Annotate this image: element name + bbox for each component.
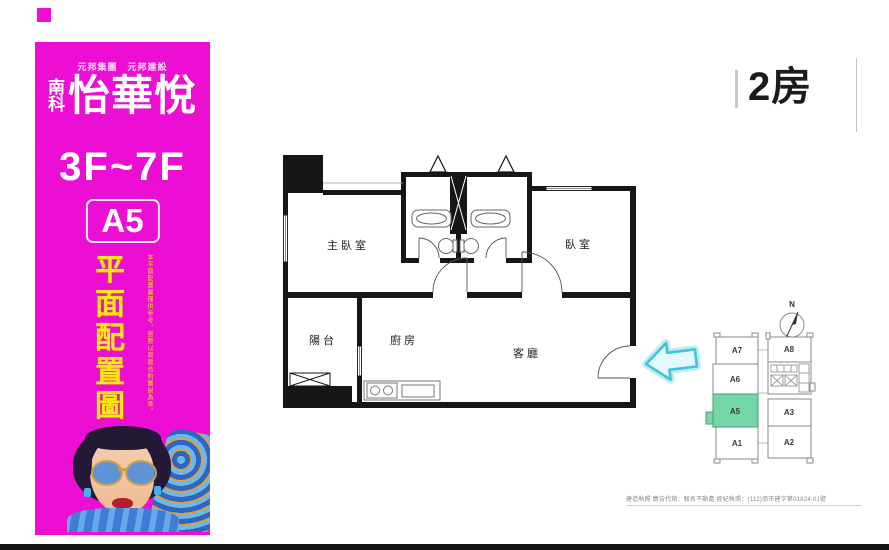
- room-label-kitchen: 廚房: [390, 333, 418, 347]
- compass-north-label: N: [789, 300, 795, 309]
- room-label-master-bedroom: 主臥室: [327, 238, 369, 252]
- vertical-title-char: 平: [95, 254, 125, 288]
- floorplan-drawing: 主臥室 臥室 陽台 廚房 客廳: [280, 150, 645, 412]
- room-label-bedroom: 臥室: [565, 237, 593, 251]
- logo-prefix-char: 科: [48, 96, 65, 113]
- bottom-edge-bar: [0, 544, 889, 550]
- unit-key-plan: N: [700, 293, 835, 488]
- logo-name: 怡華悅: [68, 75, 197, 117]
- vertical-title-char: 面: [95, 288, 125, 322]
- earring: [84, 488, 91, 497]
- vertical-title-char: 配: [95, 322, 125, 356]
- room-label-balcony: 陽台: [309, 333, 337, 347]
- vent-flaps: [430, 156, 514, 172]
- header-accent-bar: [735, 70, 738, 108]
- flyer-page: 元邦集團 元邦建設 南 科 怡華悅 3F~7F A5 平 面 配 置 圖 本平面…: [0, 0, 889, 550]
- unit-type-label: 2房: [748, 66, 812, 108]
- earring: [154, 486, 161, 495]
- unit-type-header: 2房: [735, 66, 812, 108]
- logo-prefix: 南 科: [48, 79, 65, 113]
- brand-sidebar: 元邦集團 元邦建設 南 科 怡華悅 3F~7F A5 平 面 配 置 圖 本平面…: [35, 42, 210, 535]
- unit-label-a7: A7: [732, 346, 743, 355]
- vertical-title: 平 面 配 置 圖: [95, 254, 125, 424]
- keyplan-connectors: [758, 350, 768, 443]
- compass-icon: N: [780, 300, 804, 338]
- kitchen-fixtures: [364, 381, 440, 400]
- room-labels: 主臥室 臥室 陽台 廚房 客廳: [309, 237, 593, 360]
- unit-label-a3: A3: [784, 408, 795, 417]
- hair-bang: [85, 426, 161, 450]
- panel-edge-line: [856, 58, 857, 132]
- sunglasses-left-lens: [91, 460, 123, 486]
- vertical-disclaimer: 本平面配置圖僅供參考，實際以買賣合約圖說為準。: [145, 254, 154, 434]
- neck-scarf: [67, 508, 179, 532]
- unit-label-a2: A2: [784, 438, 795, 447]
- license-fine-print: 建造執照 廣告代銷：駿名不動產 經紀執照：(112)南市建字第01824-01號: [626, 494, 862, 506]
- washer: [290, 373, 330, 386]
- project-logo: 南 科 怡華悅: [35, 75, 210, 117]
- vertical-title-char: 置: [95, 356, 125, 390]
- sunglasses-right-lens: [125, 460, 157, 486]
- floor-range: 3F~7F: [35, 145, 210, 190]
- entry-arrow-icon: [639, 335, 702, 388]
- room-label-living-room: 客廳: [513, 346, 541, 360]
- unit-label-a1: A1: [732, 439, 743, 448]
- vertical-title-char: 圖: [95, 390, 125, 424]
- logo-prefix-char: 南: [48, 79, 65, 96]
- unit-label-a8: A8: [784, 345, 795, 354]
- sunglasses-bridge: [118, 468, 127, 471]
- unit-badge: A5: [85, 199, 159, 243]
- unit-label-a5: A5: [730, 407, 741, 416]
- walls: [283, 155, 636, 408]
- corner-accent-square: [37, 8, 51, 22]
- unit-label-a6: A6: [730, 375, 741, 384]
- model-illustration: [35, 426, 210, 532]
